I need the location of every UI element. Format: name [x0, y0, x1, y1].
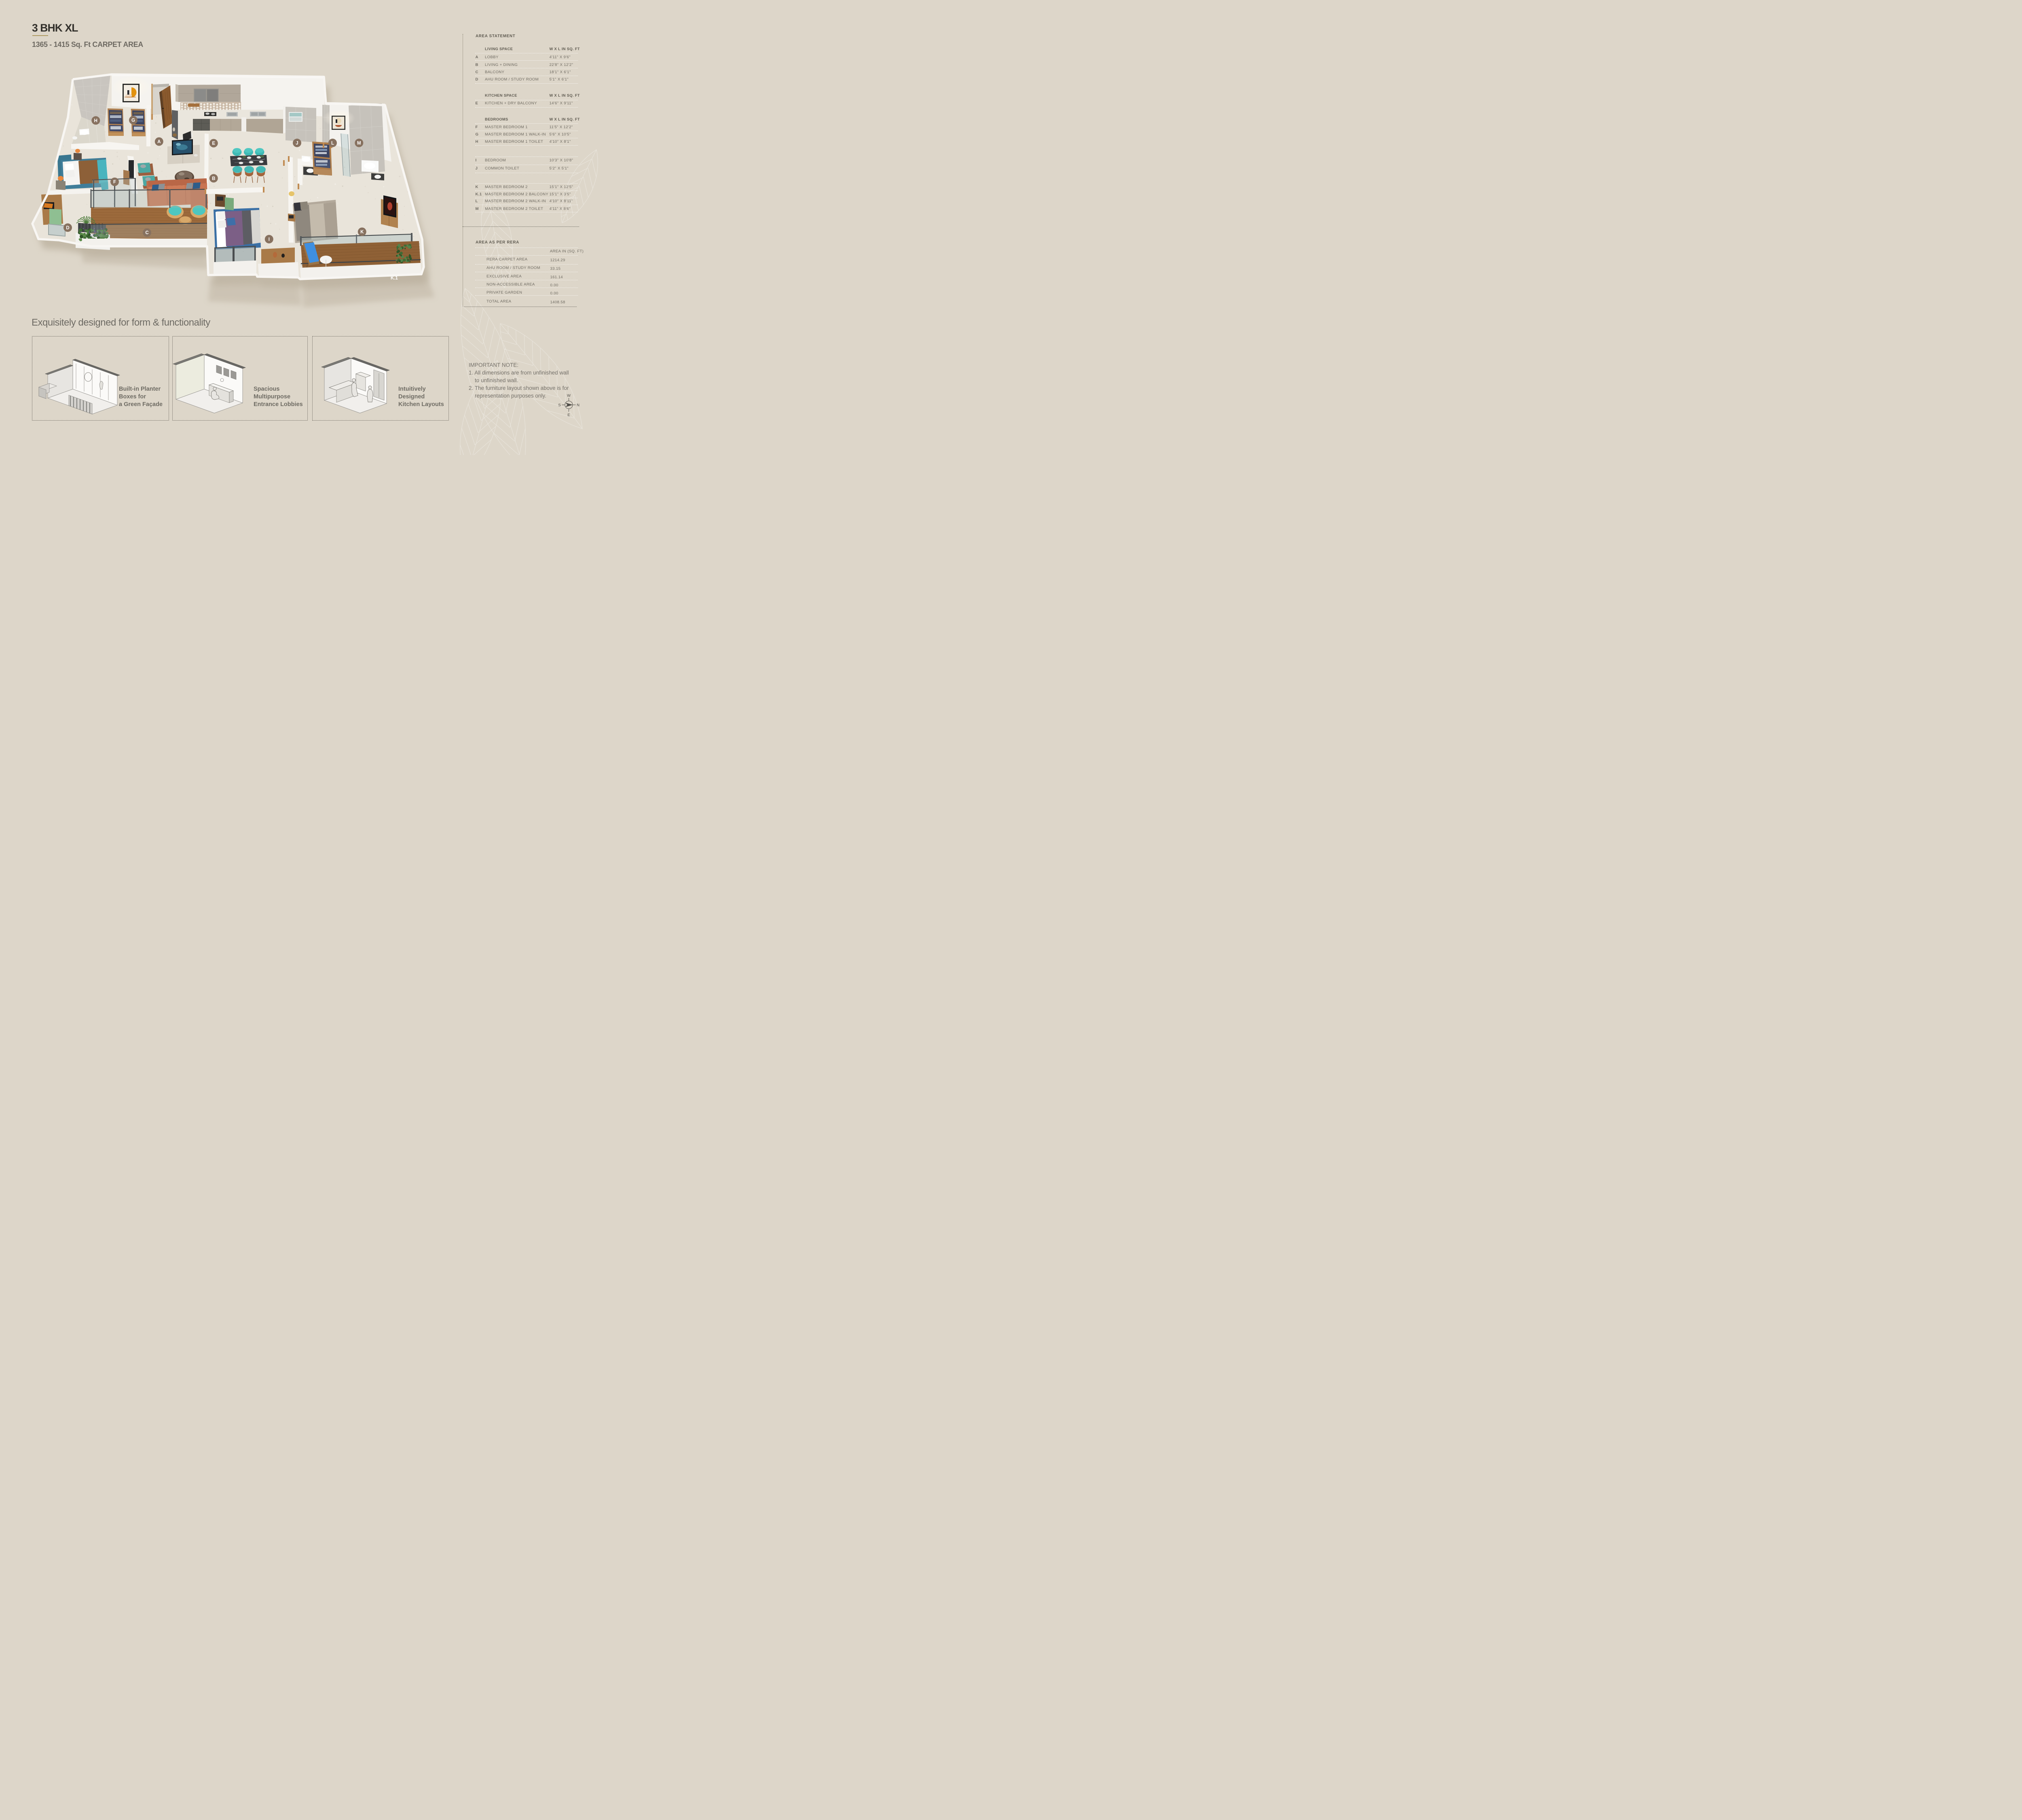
svg-text:E: E [212, 141, 215, 146]
svg-text:K: K [360, 230, 364, 235]
svg-text:A: A [157, 140, 161, 144]
svg-text:H: H [94, 119, 97, 123]
svg-text:L: L [331, 141, 334, 146]
svg-text:K.1: K.1 [391, 276, 398, 281]
svg-text:N: N [577, 403, 580, 408]
svg-text:D: D [66, 226, 69, 231]
svg-text:F: F [113, 180, 116, 185]
svg-text:E: E [567, 413, 570, 417]
svg-text:C: C [145, 231, 148, 235]
svg-text:G: G [131, 118, 135, 123]
svg-text:M: M [357, 141, 361, 146]
svg-text:S: S [558, 403, 560, 408]
svg-text:B: B [212, 176, 215, 181]
svg-text:I: I [269, 237, 270, 242]
svg-text:J: J [296, 141, 298, 146]
